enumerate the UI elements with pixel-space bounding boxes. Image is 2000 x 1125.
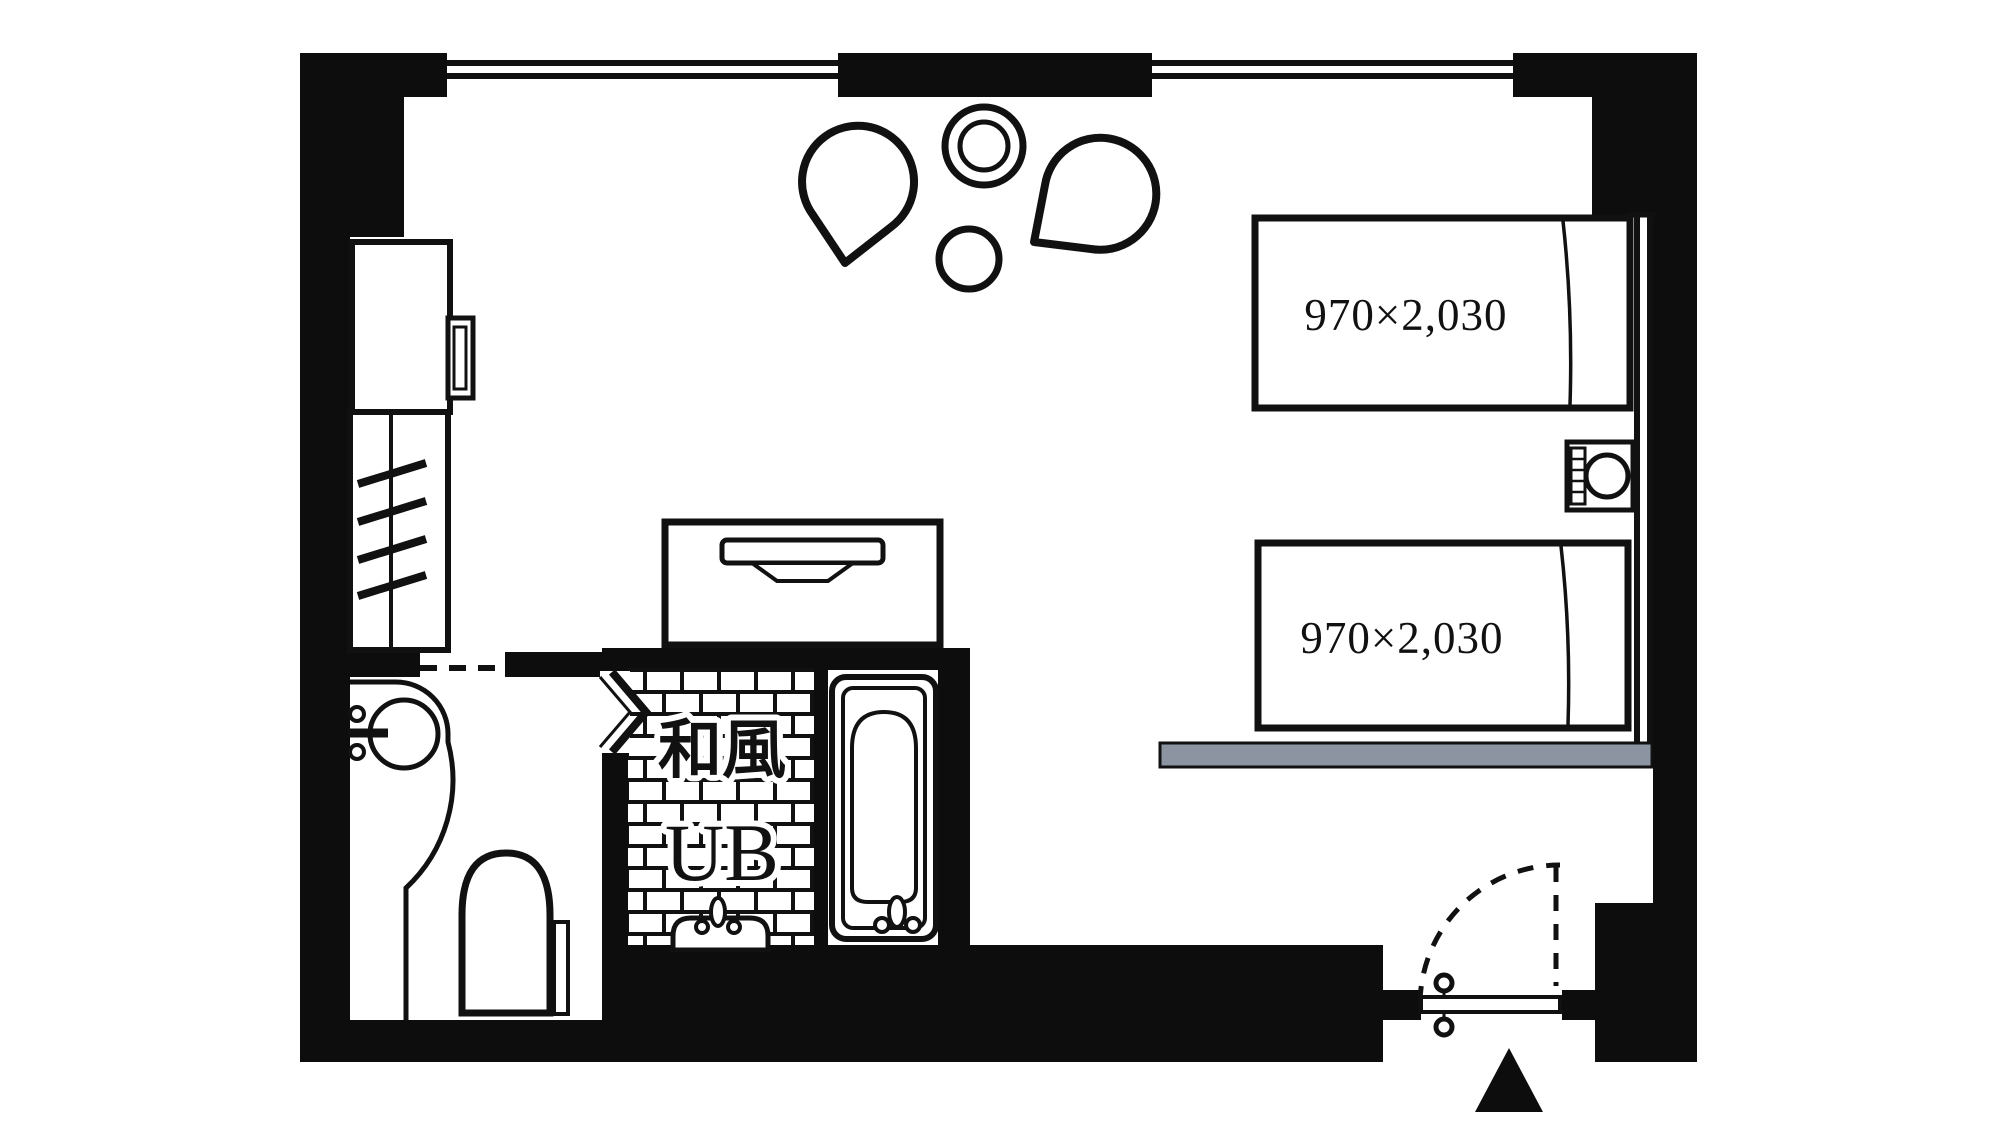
vanity-room-opening bbox=[420, 652, 505, 677]
round-table-icon bbox=[945, 107, 1023, 185]
bathroom-unit-label: UB bbox=[665, 807, 779, 898]
bed-2-size-label: 970×2,030 bbox=[1300, 613, 1503, 663]
bathroom-style-label: 和風 bbox=[658, 713, 786, 788]
floor-plan-svg: 和風 UB bbox=[0, 0, 2000, 1125]
tv-cabinet bbox=[665, 522, 940, 645]
door-handle-icon bbox=[1436, 1019, 1452, 1035]
closet-icon bbox=[350, 412, 448, 650]
phone-icon bbox=[1571, 448, 1585, 504]
bathroom-unit: 和風 UB bbox=[600, 668, 938, 950]
bed-2: 970×2,030 bbox=[1258, 543, 1628, 728]
stool-icon bbox=[939, 229, 999, 289]
door-leaf bbox=[1421, 997, 1560, 1012]
bathtub-icon bbox=[832, 677, 936, 939]
window-side-bench bbox=[1160, 743, 1652, 767]
lamp-icon bbox=[1586, 455, 1628, 497]
floor-plan: 和風 UB bbox=[0, 0, 2000, 1125]
door-handle-icon bbox=[1436, 975, 1452, 991]
bed-1-size-label: 970×2,030 bbox=[1304, 290, 1507, 340]
nightstand bbox=[1567, 442, 1633, 510]
bed-1: 970×2,030 bbox=[1255, 218, 1630, 408]
